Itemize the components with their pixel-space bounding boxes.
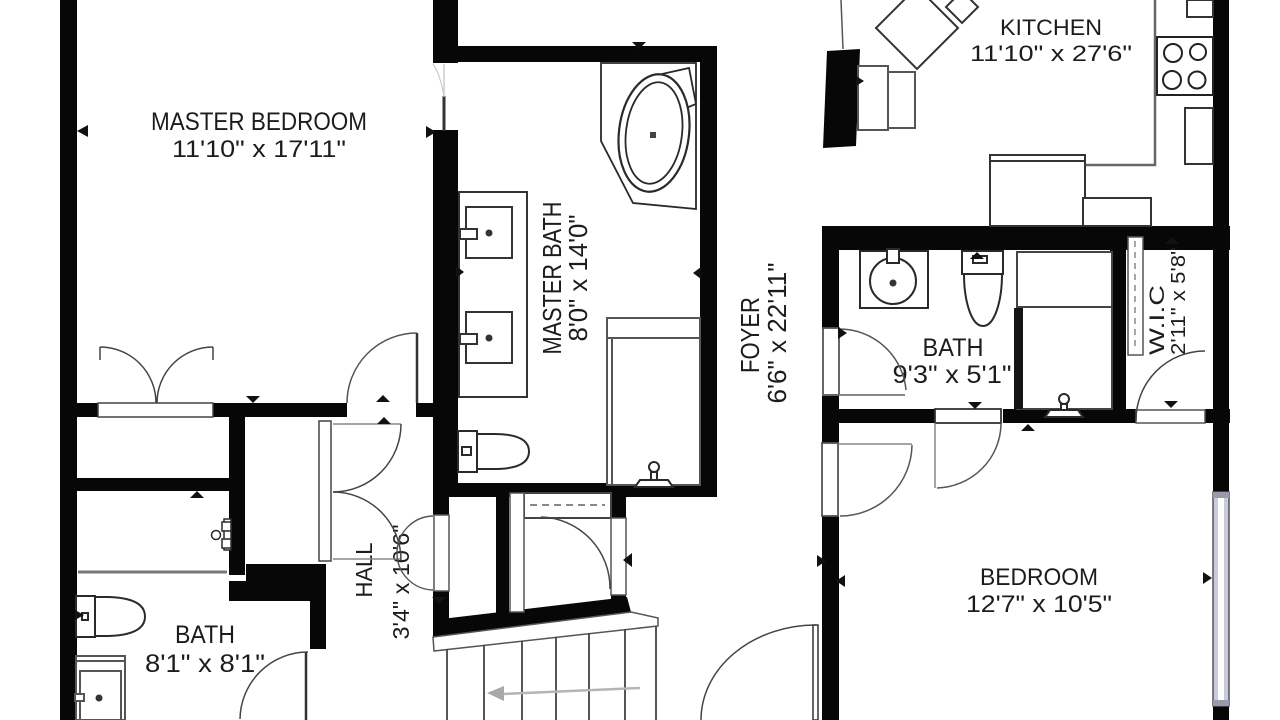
svg-text:2'11" x 5'8": 2'11" x 5'8" (1168, 247, 1190, 355)
svg-text:12'7" x 10'5": 12'7" x 10'5" (966, 591, 1112, 618)
svg-text:9'3" x 5'1": 9'3" x 5'1" (893, 361, 1012, 389)
svg-text:HALL: HALL (351, 542, 377, 597)
svg-text:11'10" x 27'6": 11'10" x 27'6" (970, 41, 1132, 66)
svg-text:11'10" x 17'11": 11'10" x 17'11" (172, 136, 346, 163)
svg-text:BATH: BATH (923, 334, 984, 362)
svg-text:8'1" x 8'1": 8'1" x 8'1" (145, 650, 265, 678)
svg-text:W.I.C: W.I.C (1146, 285, 1169, 355)
svg-text:BEDROOM: BEDROOM (980, 564, 1098, 591)
svg-text:8'0" x 14'0": 8'0" x 14'0" (563, 215, 593, 342)
svg-text:MASTER BEDROOM: MASTER BEDROOM (151, 108, 367, 136)
svg-text:6'6" x 22'11": 6'6" x 22'11" (762, 263, 792, 404)
svg-text:BATH: BATH (175, 621, 235, 649)
svg-text:FOYER: FOYER (735, 297, 765, 373)
svg-text:KITCHEN: KITCHEN (1000, 15, 1102, 40)
